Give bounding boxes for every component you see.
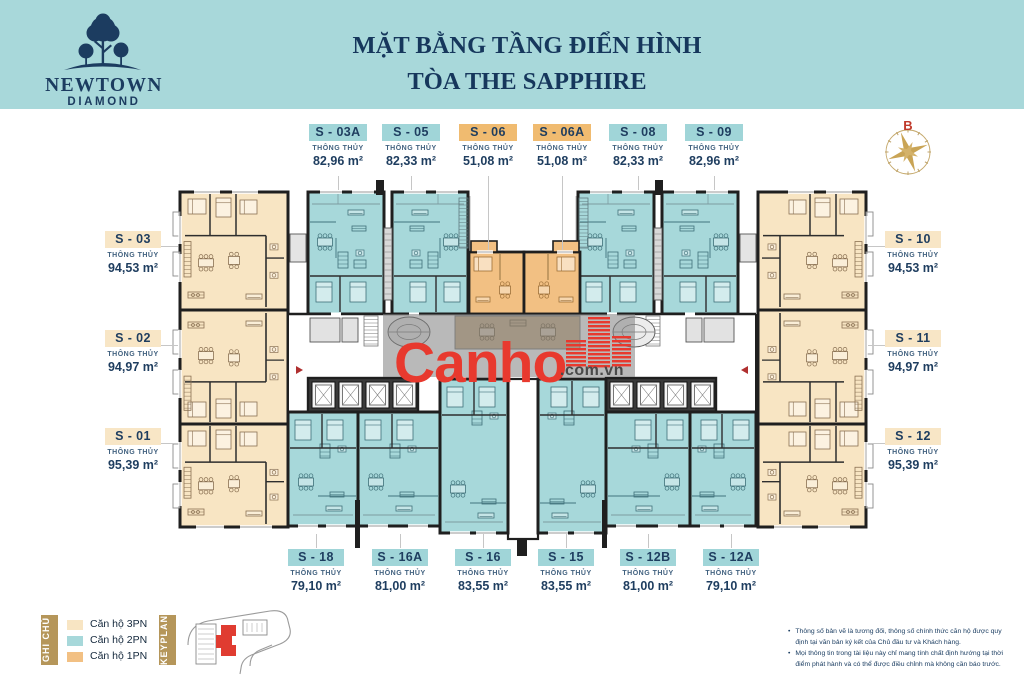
svg-text:B: B — [903, 118, 912, 133]
